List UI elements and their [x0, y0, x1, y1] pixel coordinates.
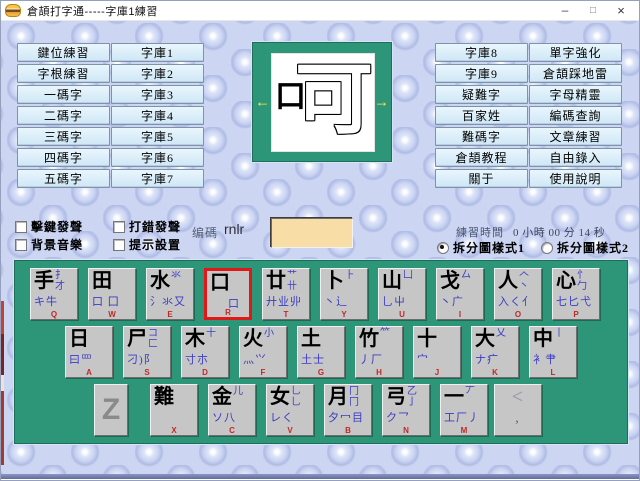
key-aux-bottom: 灬⺍ — [240, 353, 286, 369]
key-aux-top: 丆 — [465, 386, 486, 397]
key-aux-top: 凵 — [403, 270, 424, 281]
key-aux-bottom: ナ疒 — [472, 353, 518, 369]
key-main-glyph: < — [512, 386, 523, 408]
character-box: 口 可 — [271, 53, 375, 152]
key-main-glyph: 人 — [498, 270, 518, 292]
right-menu-button-r2c1[interactable]: 字母精靈 — [529, 85, 622, 104]
key-main-glyph: 一 — [444, 386, 464, 408]
key-letter-label: G — [298, 368, 344, 377]
key-main-glyph: 月 — [328, 386, 348, 408]
key-comma[interactable]: <, — [494, 384, 542, 436]
key-aux-bottom: 丶辶 — [321, 295, 367, 311]
key-P[interactable]: 心忄勹七匕弋P — [552, 268, 600, 320]
radio-dot[interactable] — [541, 242, 553, 254]
key-aux-bottom: 宀 — [414, 353, 460, 369]
key-aux-bottom: 工厂丿 — [441, 411, 487, 427]
left-menu-button-r5c1[interactable]: 字庫6 — [111, 148, 204, 167]
title-bar: 倉頡打字通-----字庫1練習 – □ × — [1, 1, 639, 21]
key-Y[interactable]: 卜⺊丶辶Y — [320, 268, 368, 320]
typing-input[interactable] — [271, 218, 353, 248]
key-aux-bottom: 衤肀 — [530, 353, 576, 369]
key-M[interactable]: 一丆工厂丿M — [440, 384, 488, 436]
key-Q[interactable]: 手扌才キ牛Q — [30, 268, 78, 320]
key-T[interactable]: 廿艹卄廾业丱T — [262, 268, 310, 320]
key-L[interactable]: 中丨衤肀L — [529, 326, 577, 378]
window-title: 倉頡打字通-----字庫1練習 — [27, 3, 551, 19]
left-menu-button-r3c1[interactable]: 字庫4 — [111, 106, 204, 125]
key-letter-label: B — [325, 426, 371, 435]
key-aux-bottom: ク乛 — [383, 411, 429, 427]
key-aux-bottom: レく — [267, 411, 313, 427]
right-menu-button-r4c0[interactable]: 難碼字 — [435, 127, 528, 146]
key-main-glyph: 尸 — [127, 328, 147, 350]
right-menu-button-r3c0[interactable]: 百家姓 — [435, 106, 528, 125]
key-letter-label: K — [472, 368, 518, 377]
key-main-glyph: 中 — [533, 328, 553, 350]
key-aux-top: 厶 — [461, 270, 482, 281]
key-letter-label: D — [182, 368, 228, 377]
right-menu-button-r5c0[interactable]: 倉頡教程 — [435, 148, 528, 167]
key-letter-label: C — [209, 426, 255, 435]
key-G[interactable]: 土土士G — [297, 326, 345, 378]
key-aux-bottom: 廾业丱 — [263, 295, 309, 311]
key-letter-label: L — [530, 368, 576, 377]
key-main-glyph: 金 — [212, 386, 232, 408]
key-letter-label: W — [89, 310, 135, 319]
right-menu-button-r6c1[interactable]: 使用說明 — [529, 169, 622, 188]
key-main-glyph: 難 — [154, 386, 174, 408]
key-B[interactable]: 月冂冂夕冖目B — [324, 384, 372, 436]
key-letter-label: H — [356, 368, 402, 377]
key-letter-label: Y — [321, 310, 367, 319]
key-aux-bottom: 寸朩 — [182, 353, 228, 369]
right-menu-button-r0c1[interactable]: 單字強化 — [529, 43, 622, 62]
right-menu-grid: 字庫8單字強化字庫9倉頡踩地雷疑難字字母精靈百家姓編碼查詢難碼字文章練習倉頡教程… — [435, 43, 622, 188]
key-aux-top: 氺 — [171, 270, 192, 281]
background-window-edge — [1, 301, 4, 465]
key-aux-top: コ匚 — [148, 328, 169, 350]
key-D[interactable]: 木十寸朩D — [181, 326, 229, 378]
keyboard-row-2: 日曰罒A尸コ匚刁)阝S木十寸朩D火小灬⺍F土土士G竹⺮丿厂H十宀J大乂ナ疒K中丨… — [65, 326, 628, 378]
right-menu-button-r5c1[interactable]: 自由錄入 — [529, 148, 622, 167]
key-V[interactable]: 女乚乚レくV — [266, 384, 314, 436]
key-aux-bottom: 土士 — [298, 353, 344, 369]
minimize-button[interactable]: – — [551, 1, 579, 20]
key-aux-top: ⺮ — [380, 328, 401, 339]
key-letter-label: O — [495, 310, 541, 319]
key-aux-top: 乙亅 — [407, 386, 428, 408]
key-main-glyph: 廿 — [266, 270, 286, 292]
key-aux-top: 艹卄 — [287, 270, 308, 292]
right-menu-button-r3c1[interactable]: 編碼查詢 — [529, 106, 622, 125]
left-menu-button-r1c0[interactable]: 字根練習 — [17, 64, 110, 83]
key-aux-top: 忄勹 — [577, 270, 598, 292]
key-letter-label: R — [207, 308, 249, 317]
window-bottom-edge — [1, 474, 639, 479]
key-aux-top: ⺊ — [345, 270, 366, 281]
radio-split-style-1[interactable]: 拆分圖樣式1 — [437, 239, 525, 256]
key-aux-top: 儿 — [233, 386, 254, 397]
character-display-panel: ← 口 可 → — [251, 41, 393, 163]
key-main-glyph: 山 — [382, 270, 402, 292]
key-letter-label: Q — [31, 310, 77, 319]
checkbox-box[interactable] — [113, 239, 125, 251]
code-label: 编碼 — [192, 224, 218, 241]
key-main-glyph: 戈 — [440, 270, 460, 292]
close-button[interactable]: × — [607, 1, 635, 20]
key-letter-label: A — [66, 368, 112, 377]
key-main-glyph: 土 — [301, 328, 321, 350]
checkbox-box[interactable] — [15, 239, 27, 251]
key-F[interactable]: 火小灬⺍F — [239, 326, 287, 378]
key-main-glyph: 卜 — [324, 270, 344, 292]
left-menu-button-r3c0[interactable]: 二碼字 — [17, 106, 110, 125]
key-aux-top: 乚乚 — [291, 386, 312, 408]
key-H[interactable]: 竹⺮丿厂H — [355, 326, 403, 378]
key-main-glyph: 口 — [210, 272, 230, 294]
key-N[interactable]: 弓乙亅ク乛N — [382, 384, 430, 436]
key-aux-top: 丨 — [554, 328, 575, 339]
key-main-glyph: 十 — [417, 328, 437, 350]
key-aux-bottom: 氵氺又 — [147, 295, 193, 311]
key-Z[interactable]: Z — [94, 384, 128, 436]
keyboard-row-1: 手扌才キ牛Q田口 囗W水氺氵氺又E口口R廿艹卄廾业丱T卜⺊丶辶Y山凵乚屮U戈厶丶… — [30, 268, 628, 320]
key-letter-label: N — [383, 426, 429, 435]
key-letter-label: M — [441, 426, 487, 435]
key-main-glyph: 日 — [69, 328, 89, 350]
key-aux-bottom: 刁)阝 — [124, 353, 170, 369]
cangjie-keyboard: 手扌才キ牛Q田口 囗W水氺氵氺又E口口R廿艹卄廾业丱T卜⺊丶辶Y山凵乚屮U戈厶丶… — [13, 259, 629, 445]
practice-time-value: 0 小時 00 分 14 秒 — [513, 224, 605, 240]
character-outline-part: 可 — [295, 61, 373, 139]
key-aux-top: 扌才 — [55, 270, 76, 292]
right-menu-button-r1c1[interactable]: 倉頡踩地雷 — [529, 64, 622, 83]
radio-split-style-2[interactable]: 拆分圖樣式2 — [541, 239, 629, 256]
key-letter-label: E — [147, 310, 193, 319]
key-O[interactable]: 人𠆢丶入く亻O — [494, 268, 542, 320]
key-aux-top: 𠆢丶 — [519, 270, 540, 292]
code-value: rnlr — [224, 221, 244, 237]
app-window: 倉頡打字通-----字庫1練習 – □ × 鍵位練習字庫1字根練習字庫2一碼字字… — [0, 0, 640, 481]
left-menu-button-r2c1[interactable]: 字庫3 — [111, 85, 204, 104]
key-aux-bottom: 口 囗 — [89, 295, 135, 311]
key-aux-bottom: キ牛 — [31, 295, 77, 311]
left-menu-button-r5c0[interactable]: 四碼字 — [17, 148, 110, 167]
key-U[interactable]: 山凵乚屮U — [378, 268, 426, 320]
key-main-glyph: 竹 — [359, 328, 379, 350]
main-content: 鍵位練習字庫1字根練習字庫2一碼字字庫3二碼字字庫4三碼字字庫5四碼字字庫6五碼… — [1, 21, 639, 479]
right-menu-button-r0c0[interactable]: 字庫8 — [435, 43, 528, 62]
practice-time-label: 練習時間 — [456, 224, 504, 240]
key-aux-bottom: 七匕弋 — [553, 295, 599, 311]
key-aux-bottom: ソ八 — [209, 411, 255, 427]
key-letter-label: T — [263, 310, 309, 319]
key-X[interactable]: 難X — [150, 384, 198, 436]
left-menu-button-r2c0[interactable]: 一碼字 — [17, 85, 110, 104]
left-menu-button-r6c0[interactable]: 五碼字 — [17, 169, 110, 188]
right-menu-button-r6c0[interactable]: 關于 — [435, 169, 528, 188]
key-main-glyph: 手 — [34, 270, 54, 292]
key-aux-bottom: 乚屮 — [379, 295, 425, 311]
keyboard-row-3: Z難X金儿ソ八C女乚乚レくV月冂冂夕冖目B弓乙亅ク乛N一丆工厂丿M<, — [94, 384, 628, 436]
left-menu-button-r0c0[interactable]: 鍵位練習 — [17, 43, 110, 62]
key-aux-bottom: 曰罒 — [66, 353, 112, 369]
key-letter-label: V — [267, 426, 313, 435]
key-letter-label: F — [240, 368, 286, 377]
checkbox-hint-settings[interactable]: 提示設置 — [113, 236, 181, 253]
left-menu-button-r1c1[interactable]: 字庫2 — [111, 64, 204, 83]
left-menu-button-r6c1[interactable]: 字庫7 — [111, 169, 204, 188]
checkbox-box[interactable] — [15, 221, 27, 233]
right-menu-button-r2c0[interactable]: 疑難字 — [435, 85, 528, 104]
key-main-glyph: 水 — [150, 270, 170, 292]
key-R[interactable]: 口口R — [204, 268, 252, 320]
left-menu-grid: 鍵位練習字庫1字根練習字庫2一碼字字庫3二碼字字庫4三碼字字庫5四碼字字庫6五碼… — [17, 43, 204, 188]
left-menu-button-r0c1[interactable]: 字庫1 — [111, 43, 204, 62]
key-I[interactable]: 戈厶丶广I — [436, 268, 484, 320]
key-main-glyph: 大 — [475, 328, 495, 350]
key-K[interactable]: 大乂ナ疒K — [471, 326, 519, 378]
key-W[interactable]: 田口 囗W — [88, 268, 136, 320]
left-menu-button-r4c1[interactable]: 字庫5 — [111, 127, 204, 146]
key-aux-bottom: 入く亻 — [495, 295, 541, 311]
key-E[interactable]: 水氺氵氺又E — [146, 268, 194, 320]
key-letter-label: P — [553, 310, 599, 319]
key-letter-label: I — [437, 310, 483, 319]
key-main-glyph: 心 — [556, 270, 576, 292]
key-aux-bottom: 丿厂 — [356, 353, 402, 369]
checkbox-keypress-sound[interactable]: 擊鍵發聲 — [15, 218, 83, 235]
key-main-glyph: 弓 — [386, 386, 406, 408]
key-main-glyph: 木 — [185, 328, 205, 350]
key-letter-label: S — [124, 368, 170, 377]
key-J[interactable]: 十宀J — [413, 326, 461, 378]
next-char-arrow[interactable]: → — [374, 95, 389, 110]
key-main-glyph: 火 — [243, 328, 263, 350]
key-C[interactable]: 金儿ソ八C — [208, 384, 256, 436]
key-A[interactable]: 日曰罒A — [65, 326, 113, 378]
key-letter-label: U — [379, 310, 425, 319]
key-aux-bottom: 夕冖目 — [325, 411, 371, 427]
key-aux-bottom: 丶广 — [437, 295, 483, 311]
key-main-glyph: Z — [102, 395, 120, 425]
key-S[interactable]: 尸コ匚刁)阝S — [123, 326, 171, 378]
prev-char-arrow[interactable]: ← — [255, 95, 270, 110]
key-aux-top: 冂冂 — [349, 386, 370, 408]
checkbox-box[interactable] — [113, 221, 125, 233]
right-menu-button-r4c1[interactable]: 文章練習 — [529, 127, 622, 146]
checkbox-error-sound[interactable]: 打錯發聲 — [113, 218, 181, 235]
key-aux-bottom: , — [495, 411, 541, 427]
key-letter-label: X — [151, 426, 197, 435]
maximize-button[interactable]: □ — [579, 1, 607, 20]
app-icon — [5, 4, 21, 17]
key-aux-bottom — [151, 411, 197, 427]
key-main-glyph: 女 — [270, 386, 290, 408]
right-menu-button-r1c0[interactable]: 字庫9 — [435, 64, 528, 83]
key-main-glyph: 田 — [92, 270, 112, 292]
key-aux-top: 小 — [264, 328, 285, 339]
key-aux-top: 十 — [206, 328, 227, 339]
key-aux-top: 乂 — [496, 328, 517, 339]
key-letter-label: J — [414, 368, 460, 377]
radio-dot[interactable] — [437, 242, 449, 254]
checkbox-background-music[interactable]: 背景音樂 — [15, 236, 83, 253]
left-menu-button-r4c0[interactable]: 三碼字 — [17, 127, 110, 146]
